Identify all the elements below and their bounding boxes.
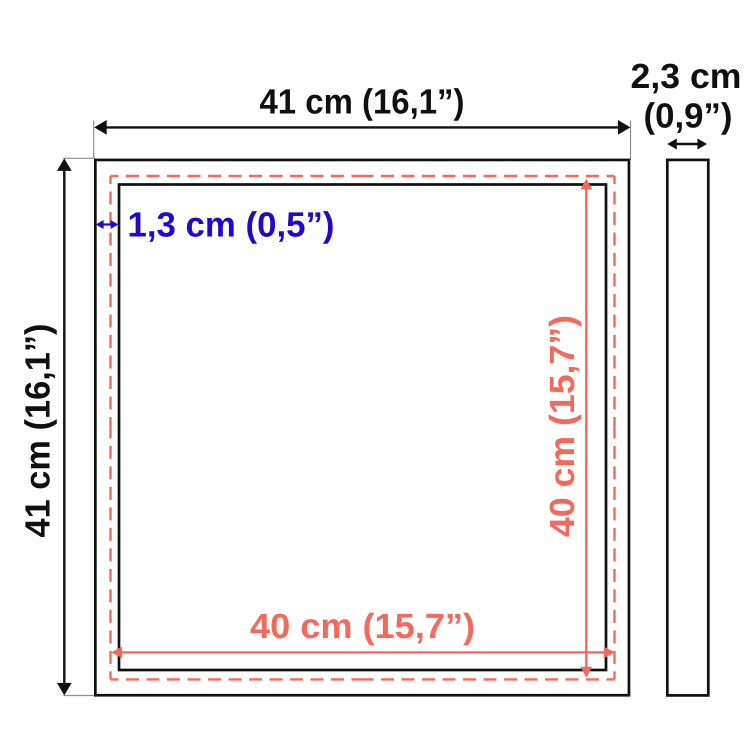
svg-text:40 cm (15,7”): 40 cm (15,7”): [250, 607, 475, 646]
svg-text:41 cm (16,1”): 41 cm (16,1”): [19, 324, 58, 538]
svg-text:2,3 cm: 2,3 cm: [631, 57, 742, 96]
svg-text:(0,9”): (0,9”): [644, 97, 733, 136]
svg-text:40 cm (15,7”): 40 cm (15,7”): [543, 315, 582, 537]
svg-text:41 cm (16,1”): 41 cm (16,1”): [260, 83, 465, 122]
svg-text:1,3 cm (0,5”): 1,3 cm (0,5”): [128, 205, 335, 244]
